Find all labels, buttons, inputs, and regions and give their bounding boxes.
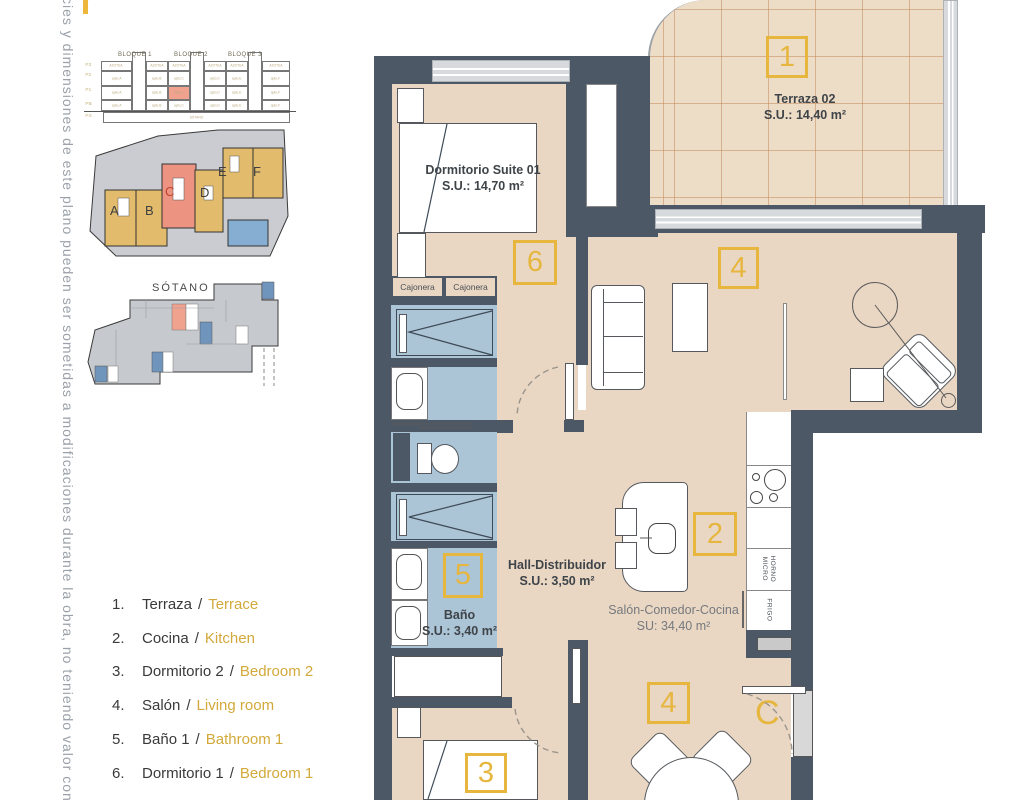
- floorplan-sheet: ficies y dimensiones de este plano puede…: [0, 0, 1024, 800]
- legend-sep: /: [230, 765, 234, 782]
- site-block-letter-b: B: [145, 203, 154, 218]
- legend-number: 2.: [112, 630, 136, 647]
- elevation-cell: AZOTEA: [204, 61, 226, 71]
- cajonera-cell: Cajonera: [444, 276, 497, 298]
- legend-es: Salón: [142, 697, 180, 714]
- site-block-letter-a: A: [110, 203, 119, 218]
- elevation-cell: apto.D: [204, 100, 226, 111]
- elevation-cell-label: apto.D: [210, 77, 220, 80]
- door-jamb: [495, 420, 513, 433]
- elevation-cell: apto.B: [146, 71, 168, 86]
- legend-es: Cocina: [142, 630, 189, 647]
- hob-burner: [764, 469, 786, 491]
- living-sliding-door: [655, 209, 922, 229]
- wall: [791, 757, 813, 800]
- legend-number: 3.: [112, 663, 136, 680]
- elevation-cell-label: AZOTEA: [208, 64, 221, 67]
- elevation-cell: apto.B: [146, 100, 168, 111]
- legend-number: 1.: [112, 596, 136, 613]
- stool: [615, 508, 637, 536]
- nightstand: [397, 88, 424, 123]
- elevation-cell: apto.F: [262, 71, 290, 86]
- side-table: [850, 368, 884, 402]
- island-sink: [648, 523, 676, 554]
- wall: [957, 205, 982, 412]
- elevation-block-label: BLOQUE 2: [174, 52, 214, 59]
- legend-en: Living room: [197, 697, 275, 714]
- elevation-cell: AZOTEA: [101, 61, 132, 71]
- elevation-tower: [132, 52, 146, 111]
- elevation-cell: apto.D: [204, 86, 226, 100]
- washbasin: [396, 373, 423, 410]
- legend-es: Dormitorio 2: [142, 663, 224, 680]
- elevation-cell-label: AZOTEA: [230, 64, 243, 67]
- basement-plan-graphic: [86, 278, 288, 390]
- hall-floor: [497, 280, 578, 708]
- elevation-floor-label: PS: [85, 114, 96, 120]
- elevation-cell: apto.C: [168, 86, 190, 100]
- hall-name: Hall-Distribuidor: [498, 558, 616, 574]
- suite-window: [432, 60, 570, 82]
- elevation-cell: apto.E: [226, 100, 248, 111]
- terrace-label: Terraza 02 S.U.: 14,40 m²: [740, 92, 870, 123]
- sheet-frame-corner: [83, 0, 357, 14]
- micro-label: MICRO: [761, 557, 768, 581]
- elevation-cell: apto.E: [226, 86, 248, 100]
- legend-item: 4. Salón / Living room: [112, 697, 274, 714]
- legend-en: Bedroom 2: [240, 663, 313, 680]
- elevation-cell-label: apto.D: [210, 91, 220, 94]
- legend-es: Baño 1: [142, 731, 190, 748]
- legend-en: Bathroom 1: [206, 731, 284, 748]
- wall: [391, 483, 497, 492]
- hall-label: Hall-Distribuidor S.U.: 3,50 m²: [498, 558, 616, 589]
- terrace-balustrade: [943, 0, 958, 206]
- entry-door-opening: [793, 690, 813, 757]
- wall: [576, 237, 588, 365]
- sofa: [591, 285, 645, 390]
- tv-unit: [783, 303, 787, 400]
- elevation-cell: apto.E: [226, 71, 248, 86]
- nightstand: [397, 233, 426, 278]
- legend-number: 4.: [112, 697, 136, 714]
- site-block-letter-f: F: [253, 164, 261, 179]
- legend-number: 5.: [112, 731, 136, 748]
- wall: [391, 541, 497, 548]
- wall: [391, 358, 497, 367]
- elevation-cell: AZOTEA: [146, 61, 168, 71]
- cajonera-label: Cajonera: [393, 278, 442, 296]
- salon-name: Salón-Comedor-Cocina: [601, 603, 746, 619]
- entry-niche-inset: [757, 637, 792, 651]
- legend-sep: /: [195, 630, 199, 647]
- cajonera-cell: Cajonera: [391, 276, 444, 298]
- terrace-side-wall: [628, 57, 650, 207]
- building-elevation-diagram: AZOTEAAZOTEAAZOTEAAZOTEAAZOTEAAZOTEAapto…: [84, 48, 296, 128]
- shower-tray: [396, 309, 493, 356]
- marker-6-suite: 6: [513, 240, 557, 285]
- elevation-cell-label: AZOTEA: [172, 64, 185, 67]
- elevation-cell-label: apto.F: [271, 91, 280, 94]
- fridge-text: FRIGO: [765, 598, 773, 621]
- salon-area: SU: 34,40 m²: [601, 619, 746, 635]
- elevation-floor-label: PB: [85, 102, 96, 108]
- suite-name: Dormitorio Suite 01: [408, 163, 558, 179]
- terrace-area: S.U.: 14,40 m²: [740, 108, 870, 124]
- elevation-cell-label: apto.D: [210, 104, 220, 107]
- site-block-letter-c: C: [165, 184, 174, 199]
- toilet-tank: [417, 443, 432, 474]
- small-stool: [941, 393, 956, 408]
- site-block-letter-e: E: [218, 164, 227, 179]
- elevation-cell: apto.A: [101, 100, 132, 111]
- elevation-cell-label: apto.A: [112, 91, 122, 94]
- elevation-floor-label: P3: [85, 63, 96, 69]
- wall: [566, 84, 586, 207]
- washbasin: [396, 554, 422, 590]
- elevation-block-label: BLOQUE 1: [118, 52, 158, 59]
- elevation-cell-label: apto.C: [174, 77, 184, 80]
- elevation-tower: [190, 52, 204, 111]
- shower-seat: [399, 499, 407, 536]
- marker-5-bathroom: 5: [443, 553, 483, 598]
- elevation-cell-label: AZOTEA: [269, 64, 282, 67]
- elevation-cell: AZOTEA: [226, 61, 248, 71]
- legend-number: 6.: [112, 765, 136, 782]
- elevation-cell: apto.A: [101, 71, 132, 86]
- elevation-cell-label: apto.F: [271, 77, 280, 80]
- counter-divider: [746, 507, 791, 508]
- wall: [393, 433, 410, 481]
- elevation-block-label: BLOQUE 3: [228, 52, 268, 59]
- elevation-cell-label: apto.C: [174, 104, 184, 107]
- elevation-basement-label: SÓTANO: [190, 116, 204, 119]
- elevation-cell: apto.D: [204, 71, 226, 86]
- elevation-cell: apto.F: [262, 100, 290, 111]
- wall: [791, 410, 982, 433]
- legend-item: 5. Baño 1 / Bathroom 1: [112, 731, 283, 748]
- elevation-cell-label: apto.A: [112, 77, 122, 80]
- bedroom2-door-leaf: [572, 648, 581, 704]
- elevation-cell-label: AZOTEA: [110, 64, 123, 67]
- nightstand: [397, 707, 421, 738]
- bano-name: Baño: [402, 608, 517, 624]
- elevation-tower: [248, 52, 262, 111]
- elevation-cell: apto.C: [168, 71, 190, 86]
- hall-area: S.U.: 3,50 m²: [498, 574, 616, 590]
- hob-burner: [752, 473, 760, 481]
- bano-label: Baño S.U.: 3,40 m²: [402, 608, 517, 639]
- legend-item: 6. Dormitorio 1 / Bedroom 1: [112, 765, 313, 782]
- elevation-cell-label: AZOTEA: [150, 64, 163, 67]
- elevation-cell-label: apto.A: [112, 104, 122, 107]
- marker-4-living-top: 4: [718, 247, 759, 289]
- elevation-floor-label: P2: [85, 73, 96, 79]
- legend-sep: /: [230, 663, 234, 680]
- marker-4-living-bottom: 4: [647, 682, 690, 724]
- legend-sep: /: [186, 697, 190, 714]
- elevation-cell: apto.B: [146, 86, 168, 100]
- shower-seat: [399, 314, 407, 353]
- counter-divider: [746, 465, 791, 466]
- elevation-cell: AZOTEA: [262, 61, 290, 71]
- suite-label: Dormitorio Suite 01 S.U.: 14,70 m²: [408, 163, 558, 194]
- oven-label: HORNO: [769, 556, 776, 583]
- hob-burner: [750, 491, 763, 504]
- floor-lamp: [852, 282, 898, 328]
- wall: [391, 420, 497, 432]
- legend-item: 3. Dormitorio 2 / Bedroom 2: [112, 663, 313, 680]
- closet: [394, 656, 502, 697]
- toilet-bowl: [431, 444, 459, 474]
- legend-item: 1. Terraza / Terrace: [112, 596, 258, 613]
- legend-sep: /: [196, 731, 200, 748]
- elevation-cell-label: apto.B: [152, 91, 162, 94]
- oven-micro-label: HORNOMICRO: [746, 548, 791, 590]
- elevation-cell-label: apto.B: [152, 77, 162, 80]
- hall-living-opening: [576, 430, 588, 640]
- elevation-cell: apto.A: [101, 86, 132, 100]
- site-plan-graphic: [78, 126, 293, 266]
- elevation-cell: AZOTEA: [168, 61, 190, 71]
- site-block-letter-d: D: [200, 185, 209, 200]
- elevation-cell-label: apto.B: [152, 104, 162, 107]
- entry-letter: C: [755, 694, 780, 733]
- fridge-label: FRIGO: [746, 590, 791, 630]
- wall-niche: [586, 84, 617, 207]
- suite-area: S.U.: 14,70 m²: [408, 179, 558, 195]
- cajonera-label: Cajonera: [446, 278, 495, 296]
- elevation-basement-row: SÓTANO: [103, 112, 290, 123]
- suite-door-leaf: [565, 363, 574, 420]
- elevation-cell-label: apto.C: [174, 91, 184, 94]
- door-jamb: [564, 420, 584, 432]
- marker-2-kitchen: 2: [693, 512, 737, 556]
- legend-item: 2. Cocina / Kitchen: [112, 630, 255, 647]
- elevation-floor-label: P1: [85, 88, 96, 94]
- entry-door-leaf: [742, 686, 806, 694]
- legend-en: Bedroom 1: [240, 765, 313, 782]
- hob-burner: [769, 493, 778, 502]
- shower-tray: [396, 494, 493, 540]
- wall: [391, 648, 503, 656]
- elevation-cell-label: apto.E: [232, 77, 242, 80]
- elevation-cell: apto.F: [262, 86, 290, 100]
- elevation-cell: apto.C: [168, 100, 190, 111]
- wall: [374, 56, 392, 800]
- side-disclaimer-text: ficies y dimensiones de este plano puede…: [60, 0, 76, 800]
- legend-en: Kitchen: [205, 630, 255, 647]
- terrace-name: Terraza 02: [740, 92, 870, 108]
- legend-es: Dormitorio 1: [142, 765, 224, 782]
- legend-es: Terraza: [142, 596, 192, 613]
- coffee-table: [672, 283, 708, 352]
- elevation-cell-label: apto.E: [232, 91, 242, 94]
- elevation-cell-label: apto.E: [232, 104, 242, 107]
- legend-en: Terrace: [208, 596, 258, 613]
- marker-3-bedroom2: 3: [465, 753, 507, 793]
- bano-area: S.U.: 3,40 m²: [402, 624, 517, 640]
- salon-label: Salón-Comedor-Cocina SU: 34,40 m²: [601, 603, 746, 634]
- stool: [615, 542, 637, 569]
- elevation-cell-label: apto.F: [271, 104, 280, 107]
- marker-1-terrace: 1: [766, 36, 808, 78]
- legend-sep: /: [198, 596, 202, 613]
